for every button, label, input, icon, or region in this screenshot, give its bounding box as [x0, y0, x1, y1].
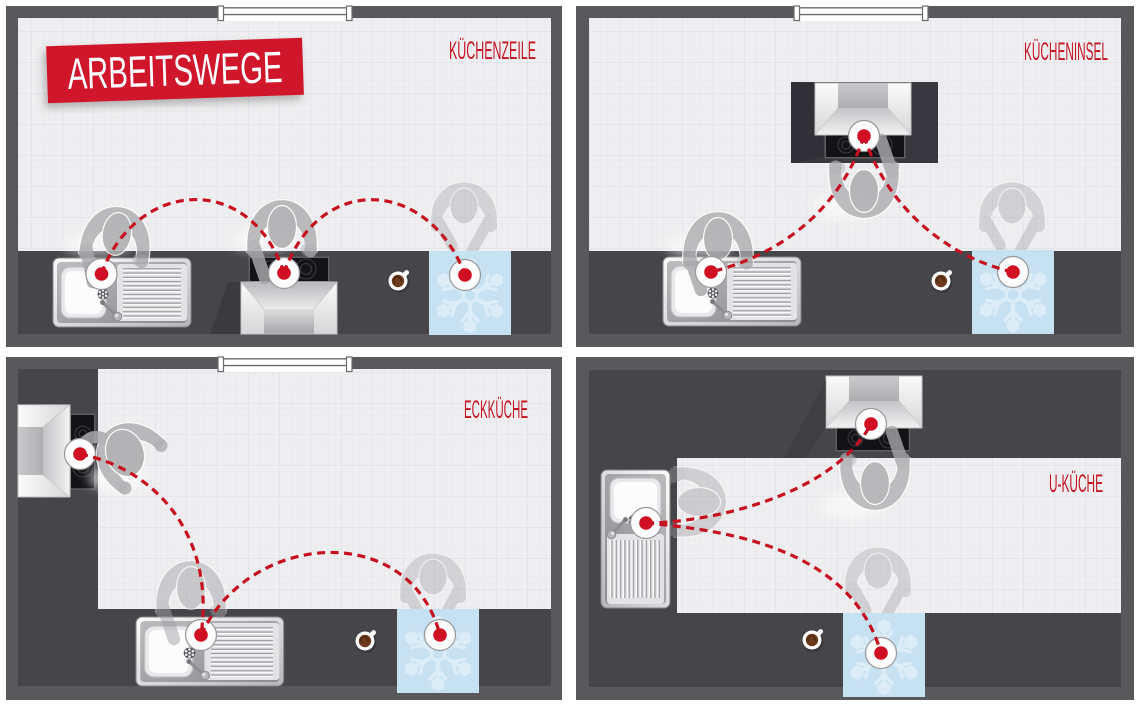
svg-text:ARBEITSWEGE: ARBEITSWEGE	[67, 43, 284, 99]
svg-text:U-KÜCHE: U-KÜCHE	[1049, 470, 1103, 498]
svg-text:KÜCHENZEILE: KÜCHENZEILE	[449, 37, 536, 65]
svg-text:ECKKÜCHE: ECKKÜCHE	[464, 396, 528, 424]
svg-text:KÜCHENINSEL: KÜCHENINSEL	[1024, 38, 1108, 66]
